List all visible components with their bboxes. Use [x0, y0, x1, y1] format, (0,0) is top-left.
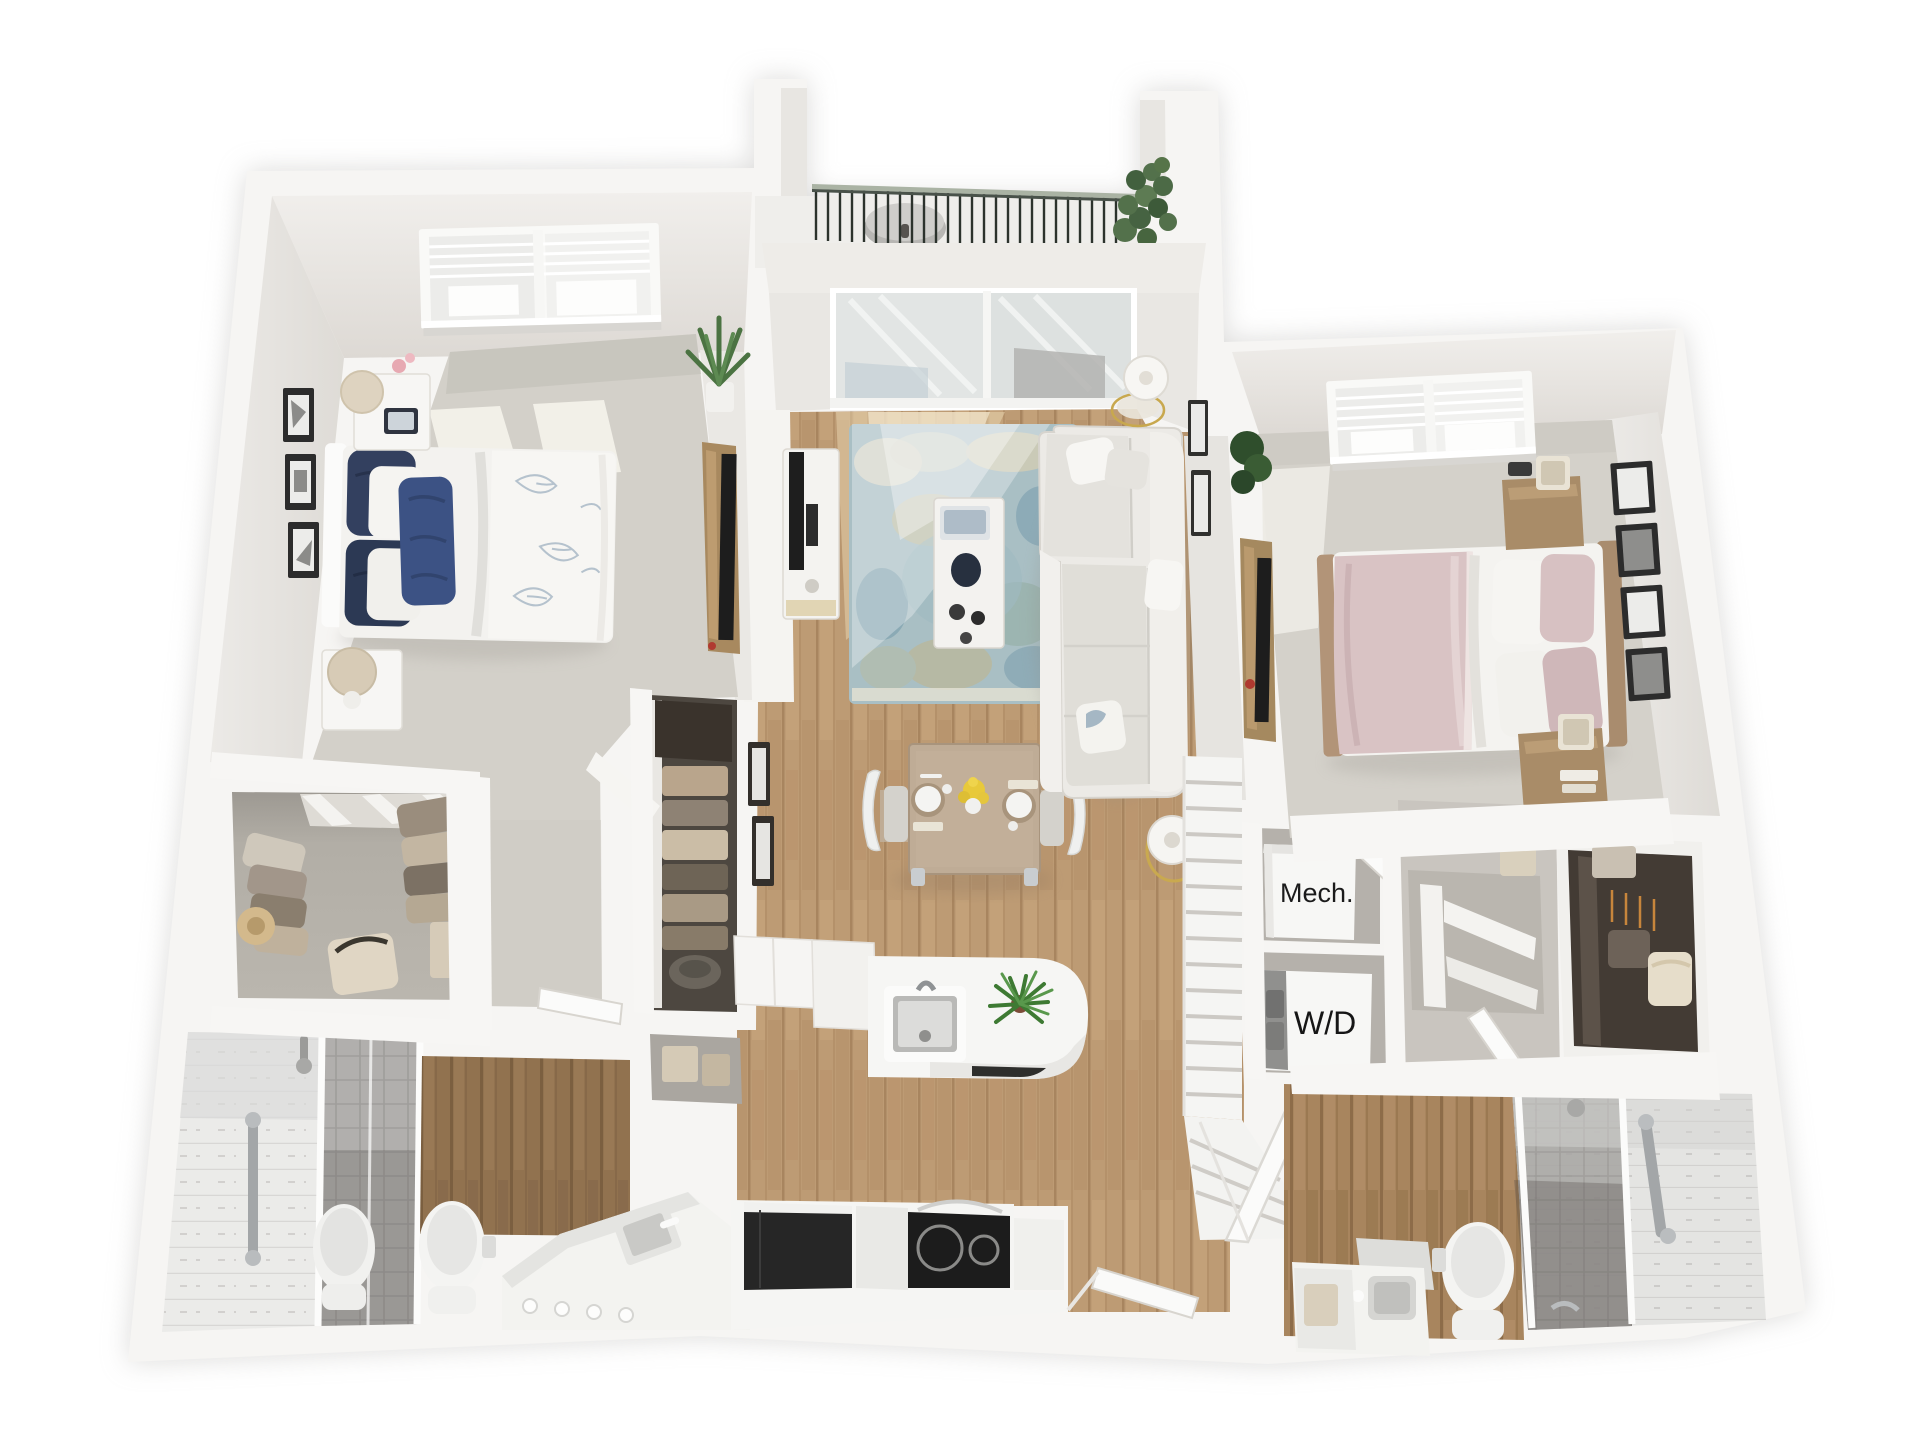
svg-text:W/D: W/D	[1294, 1005, 1356, 1041]
svg-text:Mech.: Mech.	[1280, 878, 1354, 908]
